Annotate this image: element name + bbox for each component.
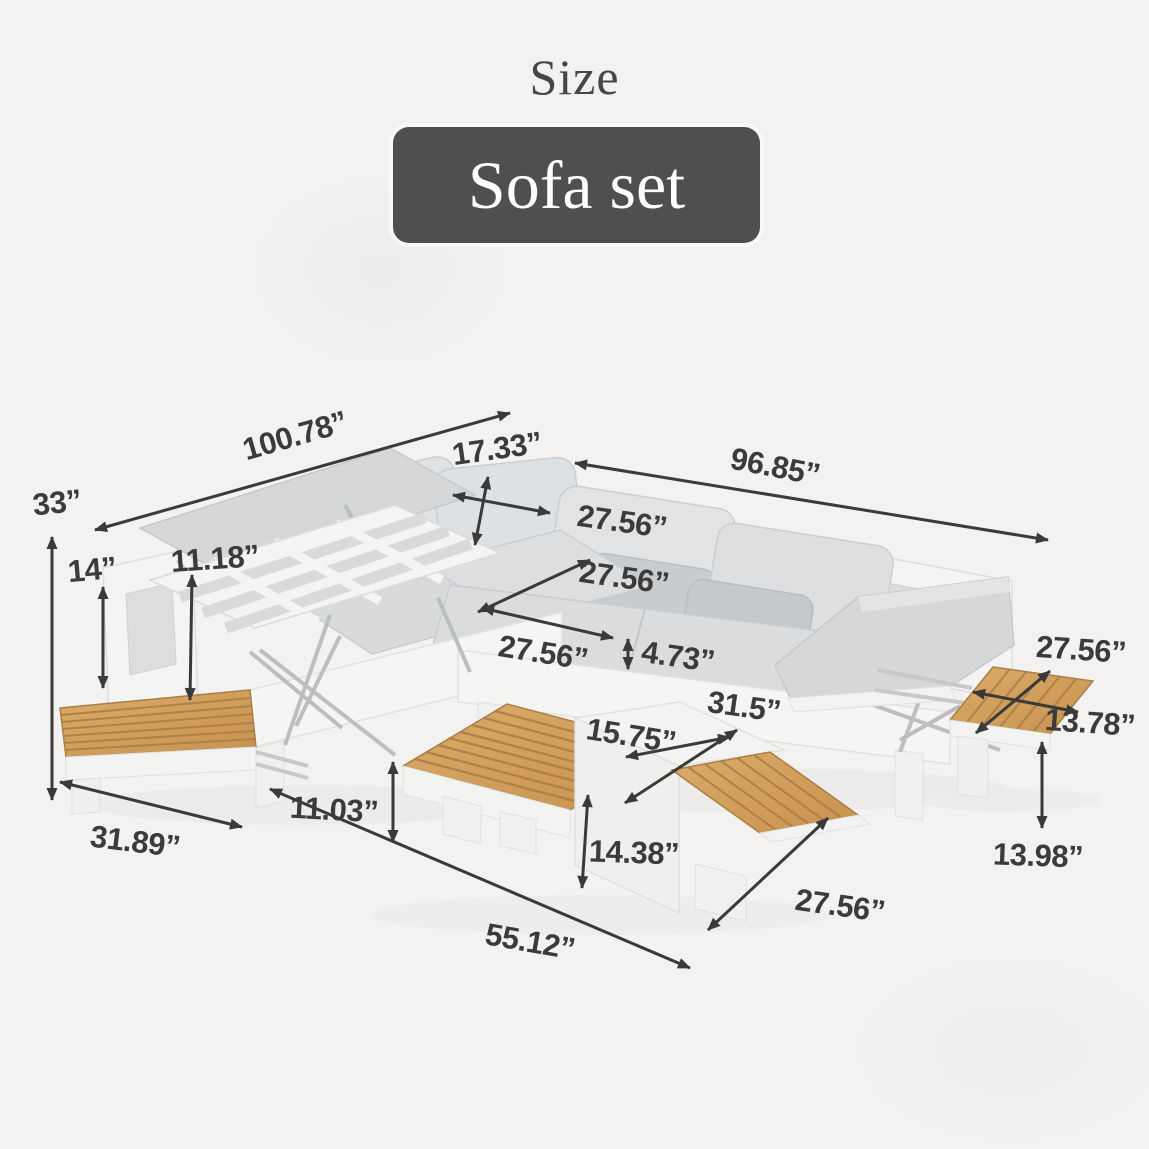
- arrow-backrest-lift-height: [190, 575, 192, 700]
- dim-label-side-table-length: 27.56”: [1035, 629, 1127, 671]
- dim-label-nesting-table-height: 14.38”: [588, 833, 679, 872]
- diagram-scene: 100.78” 17.33” 96.85” 33” 14” 11.18” 27.…: [0, 0, 1149, 1149]
- dim-label-side-table-height: 13.98”: [992, 836, 1083, 875]
- dim-label-coffee-table-height: 11.03”: [289, 790, 379, 831]
- dim-label-total-height: 33”: [31, 483, 83, 524]
- size-diagram: Size Sofa set: [0, 0, 1149, 1149]
- dim-label-arm-height: 14”: [66, 550, 117, 590]
- dim-label-side-table-width: 13.78”: [1044, 702, 1136, 744]
- dim-label-backrest-lift-height: 11.18”: [170, 538, 261, 580]
